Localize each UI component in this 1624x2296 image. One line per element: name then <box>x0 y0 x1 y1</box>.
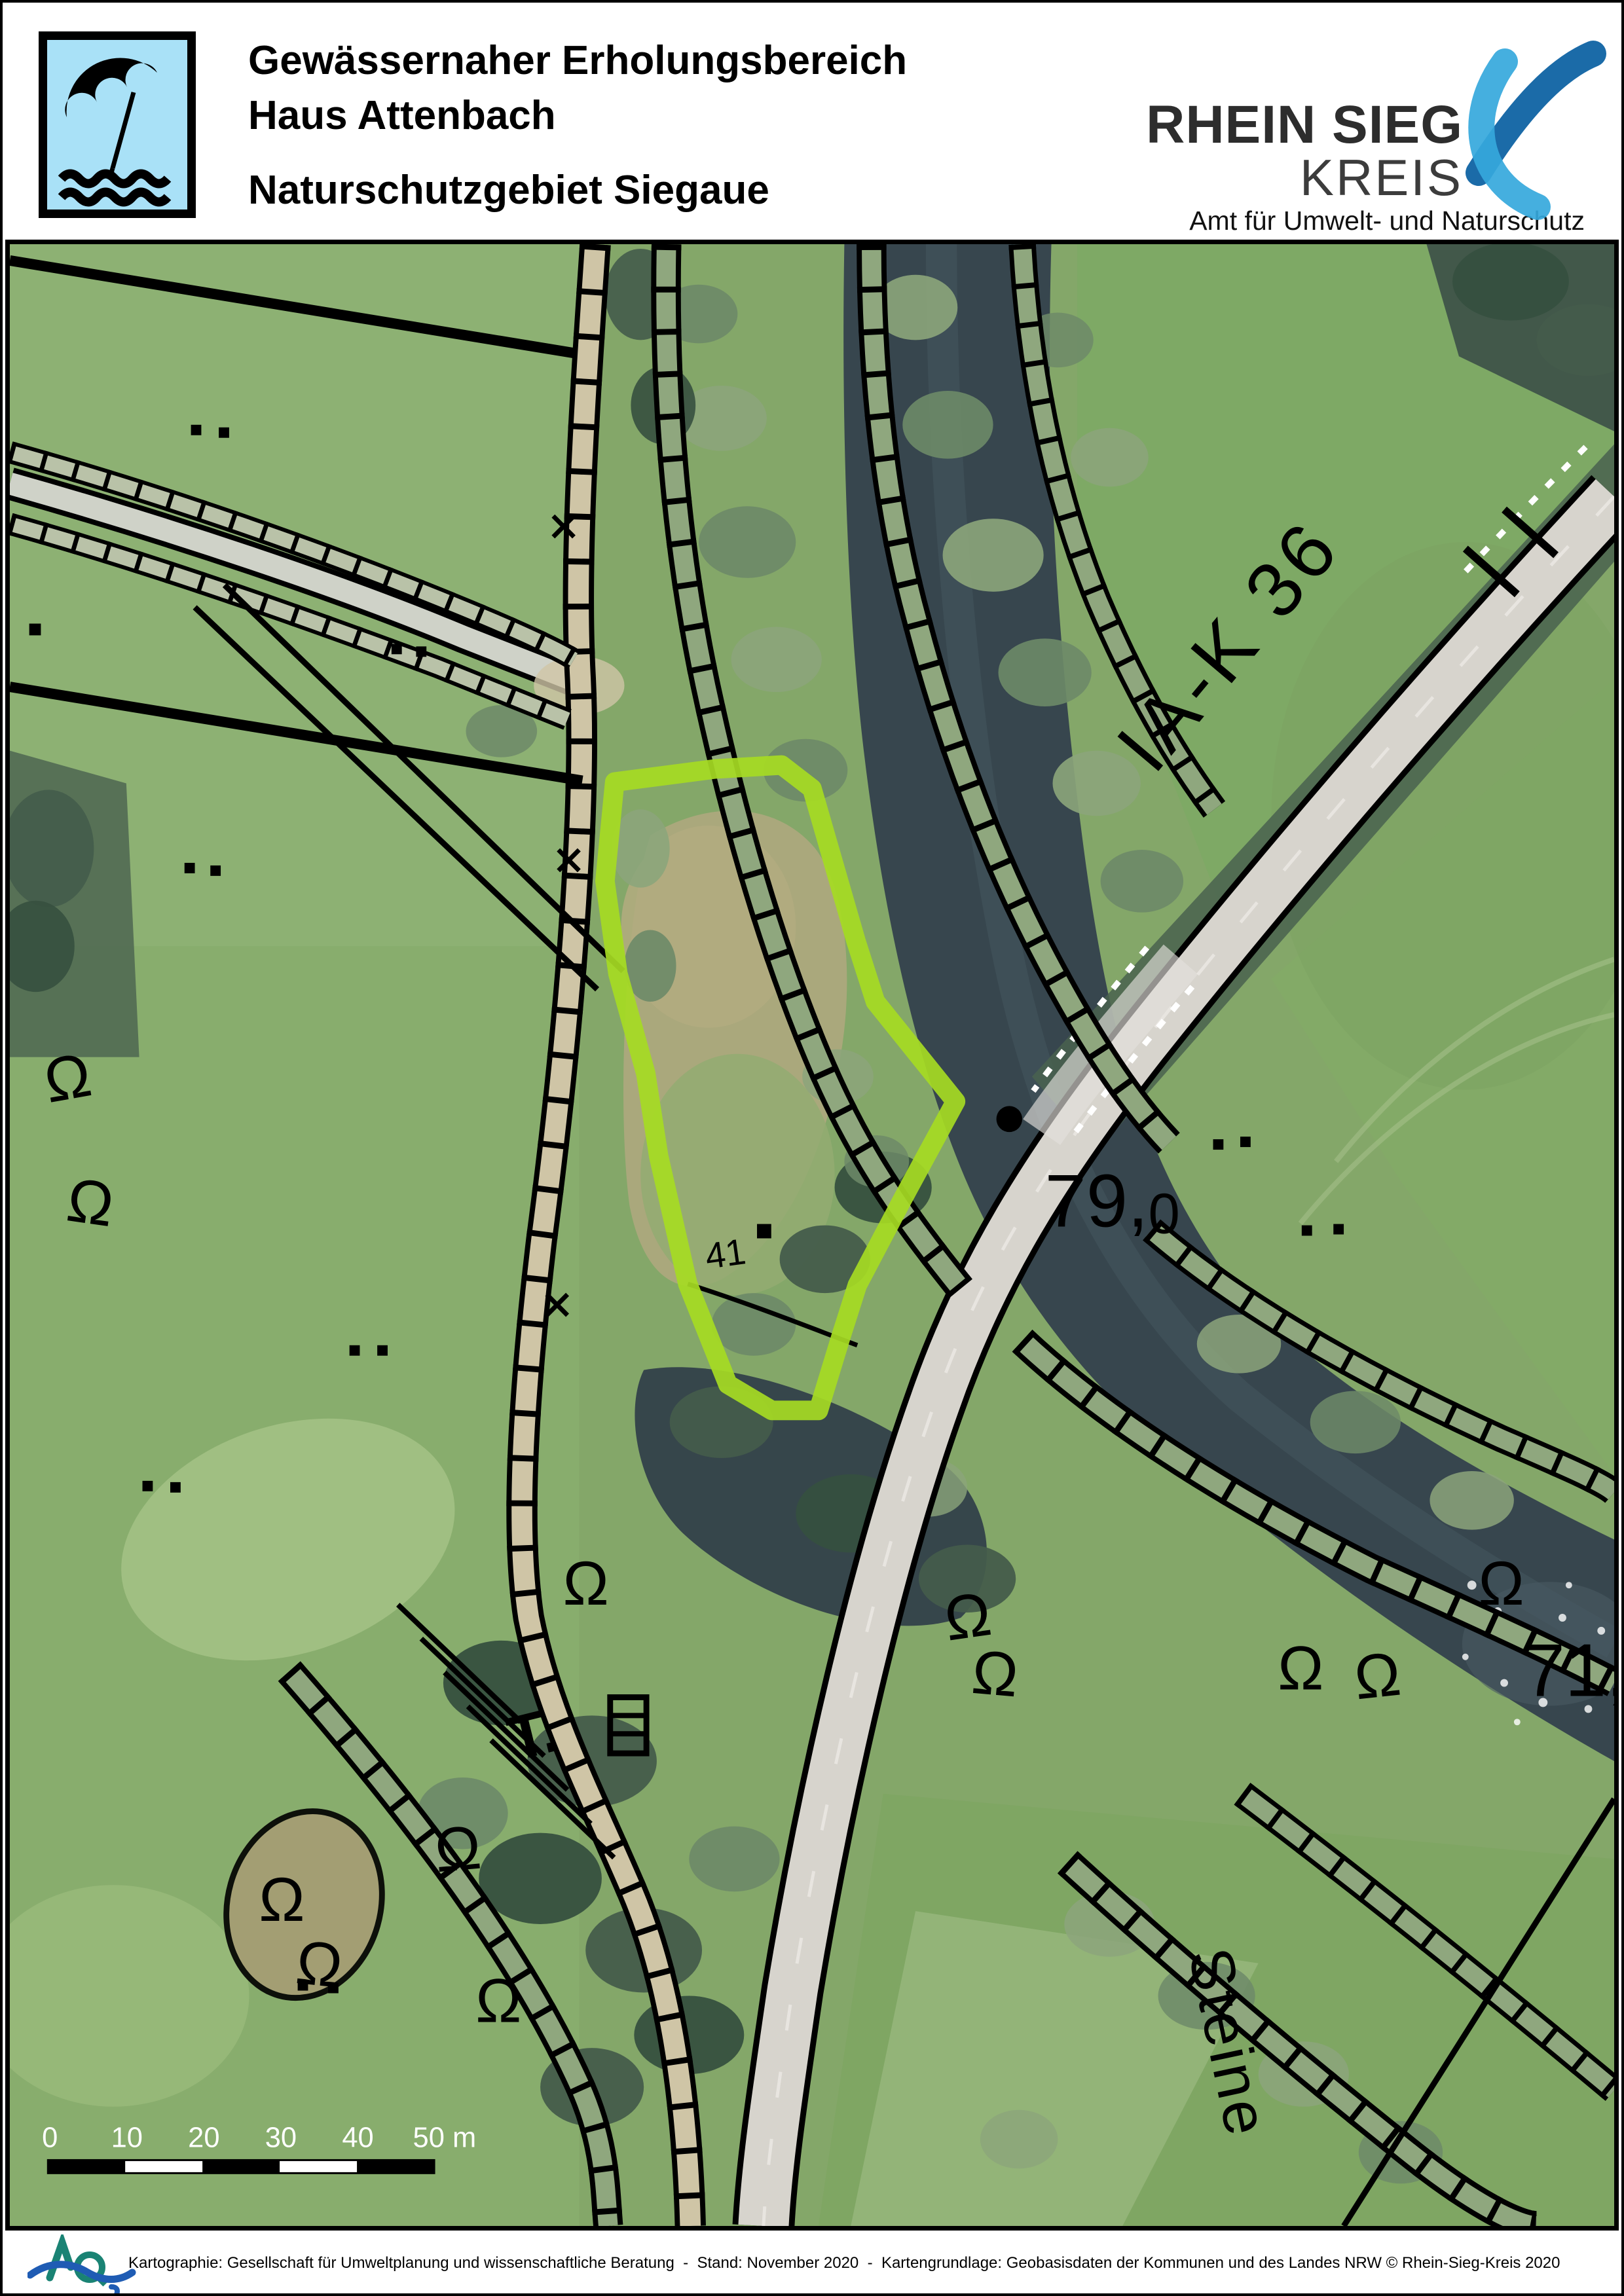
header: Gewässernaher Erholungsbereich Haus Atte… <box>3 3 1621 240</box>
tree-symbol-icon: Ω <box>259 1865 304 1934</box>
map-canvas: T. <box>10 244 1614 2226</box>
svg-text:30: 30 <box>265 2121 297 2153</box>
page-title-line2: Haus Attenbach <box>248 96 556 136</box>
svg-text:0: 0 <box>42 2121 58 2153</box>
org-name-top: RHEIN SIEG <box>1146 94 1463 156</box>
tree-symbol-icon: Ω <box>432 1812 484 1885</box>
tree-symbol-icon: Ω <box>1351 1639 1404 1712</box>
footer: Kartographie: Gesellschaft für Umweltpla… <box>3 2233 1621 2293</box>
map-frame: T. <box>5 240 1619 2231</box>
org-name-bottom: KREIS <box>1300 148 1463 208</box>
elevation-label-right: 71, <box>1524 1629 1614 1712</box>
tree-symbol-icon: Ω <box>969 1637 1021 1709</box>
cartography-company-logo-icon <box>28 2234 139 2293</box>
map-sheet-page: Gewässernaher Erholungsbereich Haus Atte… <box>0 0 1624 2296</box>
svg-text:50 m: 50 m <box>413 2121 477 2153</box>
page-title-line3: Naturschutzgebiet Siegaue <box>248 170 769 211</box>
tree-symbol-icon: Ω <box>563 1549 609 1618</box>
parcel-label: 41 <box>703 1231 748 1277</box>
tree-symbol-icon: Ω <box>63 1165 118 1239</box>
recreation-area-icon <box>39 31 196 218</box>
map-credit: Kartographie: Gesellschaft für Umweltpla… <box>128 2254 1560 2272</box>
tree-symbol-icon: Ω <box>1278 1633 1323 1702</box>
water-wave-icon <box>62 174 168 184</box>
tree-symbol-icon: Ω <box>1479 1549 1524 1618</box>
rhein-sieg-kreis-logo-icon <box>1459 16 1610 225</box>
svg-text:40: 40 <box>342 2121 373 2153</box>
beach-umbrella-icon <box>47 40 187 210</box>
page-title-line1: Gewässernaher Erholungsbereich <box>248 41 907 81</box>
svg-text:10: 10 <box>111 2121 143 2153</box>
tree-symbol-icon: Ω <box>475 1966 521 2035</box>
tree-symbol-icon: Ω <box>293 1927 346 2001</box>
svg-text:20: 20 <box>188 2121 219 2153</box>
